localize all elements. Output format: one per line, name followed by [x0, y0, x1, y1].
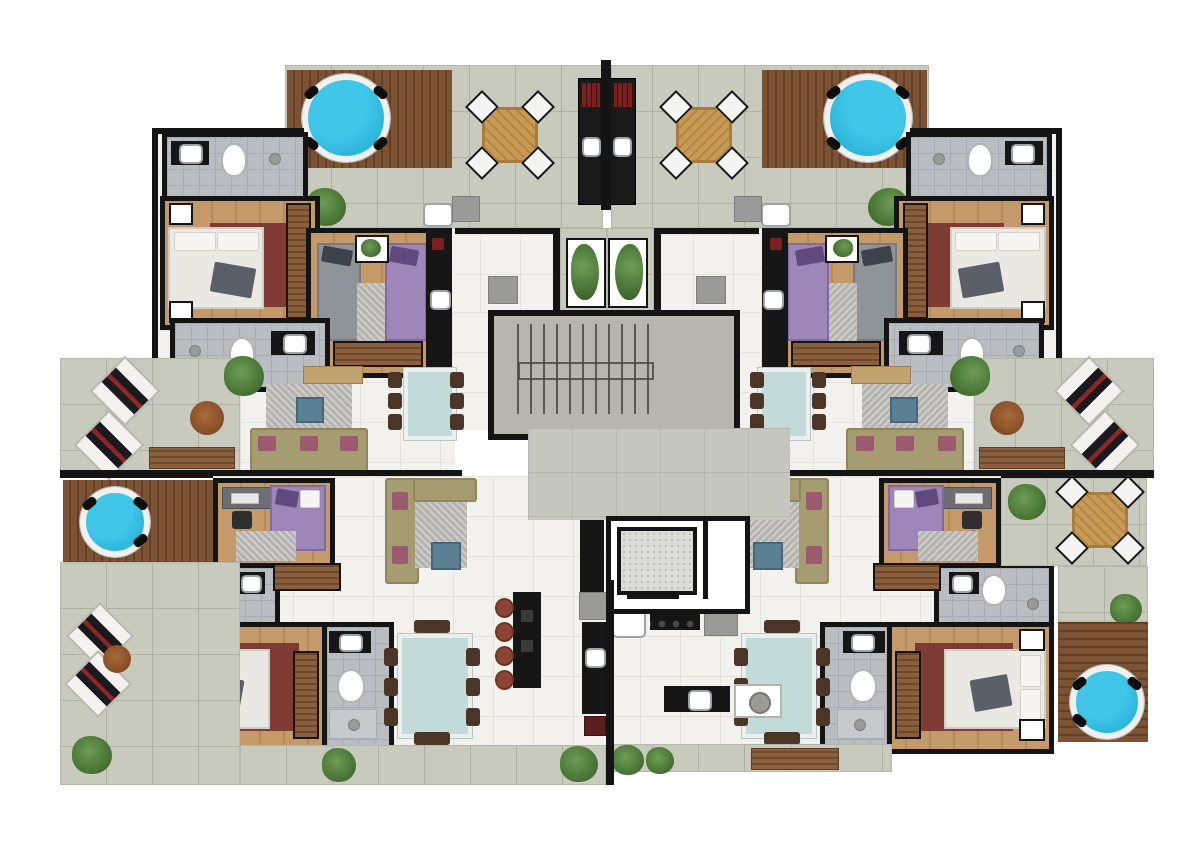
- shrub-icon: [72, 736, 112, 774]
- refrigerator: [696, 276, 726, 304]
- desk-chair: [962, 511, 982, 529]
- bar-stool: [495, 646, 514, 666]
- kitchen-counter: [582, 622, 606, 714]
- kitchen-island: [513, 592, 541, 688]
- tv-cabinet: [851, 366, 911, 384]
- desk: [942, 487, 992, 509]
- kitchen-counter: [664, 686, 730, 712]
- toilet-icon: [981, 574, 1007, 606]
- nightstand: [1019, 719, 1045, 741]
- washing-machine: [734, 684, 782, 718]
- bathroom-lower: [934, 563, 1054, 631]
- staircase: [488, 310, 740, 440]
- kitchen-counter-strip: [762, 228, 788, 368]
- shrub-icon: [560, 746, 598, 782]
- grill-icon: [614, 83, 633, 107]
- refrigerator: [579, 592, 607, 620]
- dining-chair: [816, 678, 830, 696]
- dining-chair: [812, 393, 826, 409]
- office-rug: [918, 531, 978, 561]
- keyboard-icon: [955, 493, 983, 504]
- shrub-icon: [950, 356, 990, 396]
- elevator-block: [606, 516, 750, 614]
- shrub-icon: [322, 748, 356, 782]
- vanity-counter: [899, 331, 943, 355]
- wardrobe: [895, 651, 921, 739]
- dining-chair: [812, 372, 826, 388]
- jacuzzi-pool: [824, 74, 912, 162]
- dining-chair: [812, 414, 826, 430]
- stair-landing: [518, 362, 654, 380]
- kitchen-sink-icon: [688, 690, 712, 711]
- elevator-car: [617, 527, 697, 595]
- bedroom-rug: [829, 283, 857, 345]
- center-dividing-wall: [601, 60, 611, 210]
- shoe-shelf: [873, 563, 941, 591]
- sink-icon: [952, 575, 973, 593]
- sink-icon: [851, 634, 875, 652]
- vanity-counter: [949, 572, 979, 594]
- bar-stool: [495, 622, 514, 642]
- bottom-terrace-strip: [240, 745, 606, 785]
- living-rug: [862, 384, 948, 434]
- nightstand: [1019, 629, 1045, 651]
- center-dividing-wall-lower: [606, 580, 614, 785]
- bathroom-top: [906, 132, 1052, 204]
- shower-stall: [837, 709, 885, 739]
- plant-table: [825, 235, 859, 263]
- elevator-door: [627, 591, 679, 599]
- dining-chair: [816, 708, 830, 726]
- shrub-icon: [612, 745, 644, 775]
- kitchen-sink-icon: [585, 648, 606, 668]
- dining-chair: [750, 372, 764, 388]
- toilet-icon: [967, 143, 993, 177]
- low-shelf: [791, 341, 881, 367]
- double-bed: [944, 649, 1046, 729]
- nightstand: [1021, 203, 1045, 225]
- lower-master-bedroom: [882, 622, 1054, 754]
- coffee-table: [890, 397, 918, 423]
- shower-head-icon: [1013, 345, 1025, 357]
- ottoman: [753, 542, 783, 570]
- sink-icon: [907, 334, 931, 354]
- sink-icon: [1011, 144, 1035, 164]
- core-wall: [703, 521, 708, 599]
- wood-bench: [979, 447, 1065, 469]
- master-bedroom: [894, 196, 1054, 330]
- octagonal-table: [1072, 492, 1128, 548]
- washing-machine: [734, 196, 762, 222]
- wine-cooler: [584, 716, 606, 736]
- shower-head-icon: [933, 153, 945, 165]
- plant-icon: [833, 239, 853, 257]
- office-bedroom: [879, 478, 1001, 576]
- laundry-sink: [761, 203, 791, 227]
- entry-hall: [528, 428, 790, 520]
- planter-wall: [654, 228, 661, 312]
- counter-sink: [613, 137, 632, 157]
- planter-shrub-icon: [615, 244, 643, 300]
- shower-head-icon: [1027, 598, 1039, 610]
- round-side-table: [990, 401, 1024, 435]
- jacuzzi-pool: [80, 487, 150, 557]
- vanity-counter: [843, 631, 885, 653]
- drain-icon: [854, 719, 866, 731]
- dining-chair: [764, 620, 800, 633]
- bar-stool: [495, 598, 514, 618]
- planter-box: [608, 238, 648, 308]
- toilet-icon: [849, 669, 877, 703]
- shrub-icon: [1008, 484, 1046, 520]
- sofa: [846, 428, 964, 474]
- exterior-wall: [1056, 128, 1062, 386]
- double-bed: [950, 227, 1046, 309]
- dining-chair: [750, 393, 764, 409]
- wood-bench: [751, 748, 839, 770]
- bathroom-ensuite: [820, 622, 892, 754]
- terrace-table-group: [672, 103, 736, 167]
- dining-chair: [816, 648, 830, 666]
- shrub-icon: [646, 747, 674, 774]
- barbecue-counter: [609, 78, 636, 205]
- floor-plan-canvas: [0, 0, 1200, 856]
- dining-chair: [734, 648, 748, 666]
- octagonal-table: [676, 107, 732, 163]
- bar-stool: [495, 670, 514, 690]
- vanity-counter: [1005, 141, 1043, 165]
- terrace-table-group: [1068, 488, 1132, 552]
- single-bed-purple: [787, 243, 829, 341]
- kitchen-sink-icon: [763, 290, 784, 310]
- round-pouf: [103, 645, 131, 673]
- shrub-icon: [1110, 594, 1142, 624]
- jacuzzi-pool: [1070, 665, 1144, 739]
